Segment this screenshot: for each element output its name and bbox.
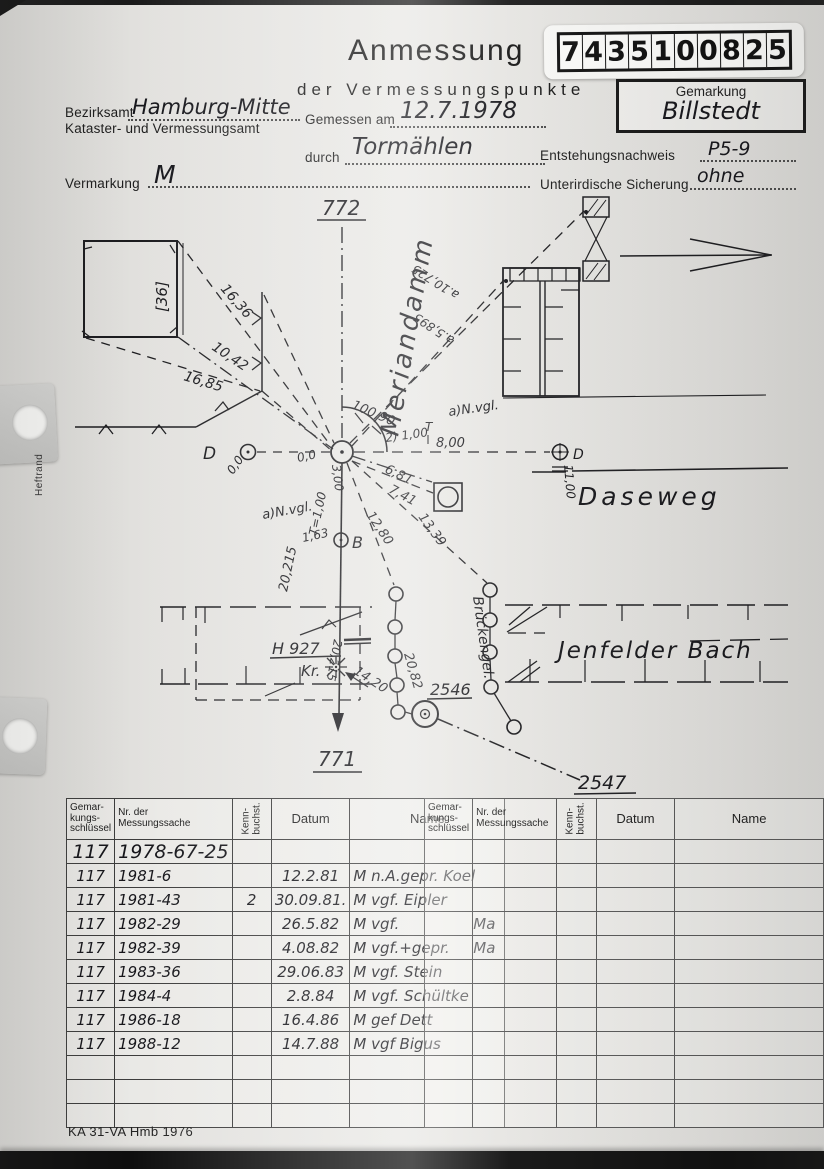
col-header-name: Name	[675, 799, 824, 840]
cell-kennbuchst	[232, 984, 271, 1008]
cell-schluessel: 117	[67, 840, 115, 864]
bezirksamt-value: Hamburg-Mitte	[132, 95, 291, 119]
measurement-log-table-right: Gemar- kungs- schlüssel Nr. der Messungs…	[424, 798, 824, 1128]
label-d-right: D	[573, 447, 584, 463]
col-header-datum: Datum	[271, 799, 350, 840]
heftrand-margin-label: Heftrand	[34, 454, 45, 496]
cell-kennbuchst	[232, 840, 271, 864]
survey-sketch: 772 771 Meriandamm D 0,0 0,0 100,90	[0, 195, 824, 795]
m-20-215-a: 20,215	[276, 545, 300, 593]
m-16-36: 16,36	[217, 281, 255, 322]
cell-datum: 14.7.88	[271, 1032, 350, 1056]
stamp-digit-box: 7 4 3 5 1 0 0 8 2 5	[556, 30, 791, 72]
cell-nr: 1986-18	[115, 1008, 232, 1032]
cell-nr: 1983-36	[115, 960, 232, 984]
field-line	[345, 163, 545, 165]
m-3-00: 3,00	[329, 464, 346, 493]
amt-label: Kataster- und Vermessungsamt	[65, 121, 260, 136]
stamp-digit: 5	[627, 34, 650, 68]
entstehung-label: Entstehungsnachweis	[540, 148, 675, 163]
sicherung-label: Unterirdische Sicherung	[540, 177, 689, 192]
col-header-datum: Datum	[596, 799, 675, 840]
gemessen-value: 12.7.1978	[400, 98, 517, 124]
vermarkung-label: Vermarkung	[65, 176, 140, 191]
durch-label: durch	[305, 150, 340, 165]
cell-nr: 1988-12	[115, 1032, 232, 1056]
stamp-digit: 8	[719, 33, 742, 67]
cell-schluessel: 117	[67, 960, 115, 984]
cell-kennbuchst	[232, 912, 271, 936]
cell-kennbuchst	[232, 936, 271, 960]
m-13-39: 13,39	[415, 511, 449, 550]
nvgl-left: a)N.vgl.	[261, 499, 313, 523]
page-title: Anmessung	[348, 34, 524, 68]
cell-datum: 29.06.83	[271, 960, 350, 984]
table-row-empty	[425, 1080, 824, 1104]
northeast-group: a.10,725 a.5,895	[350, 197, 772, 447]
label-d-left: D	[203, 444, 216, 464]
gemarkung-value: Billstedt	[619, 97, 803, 125]
m-1-63: 1,63	[301, 526, 330, 545]
col-header-kennbuchst: Kenn- buchst.	[232, 799, 271, 840]
scan-edge-top	[0, 0, 824, 5]
cell-schluessel: 117	[67, 864, 115, 888]
durch-value: Tormählen	[352, 134, 473, 160]
table-row-empty	[425, 912, 824, 936]
table-row-empty	[425, 1056, 824, 1080]
hole-punch-reinforcement	[0, 383, 58, 464]
field-line	[690, 188, 796, 190]
scan-edge-bottom	[0, 1151, 824, 1169]
cell-nr: 1981-6	[115, 864, 232, 888]
cell-kennbuchst	[232, 1008, 271, 1032]
cell-nr: 1982-29	[115, 912, 232, 936]
punch-hole	[1, 718, 38, 755]
gemarkung-box: Gemarkung Billstedt	[616, 79, 806, 133]
point-771-label: 771	[318, 747, 356, 771]
m-11-00: 11,00	[561, 464, 578, 500]
col-header-kennbuchst-text: Kenn- buchst.	[241, 803, 262, 835]
cell-nr: 1982-39	[115, 936, 232, 960]
entstehung-value: P5-9	[708, 138, 751, 160]
street-daseweg: Daseweg	[578, 482, 721, 511]
col-header-schluessel: Gemar- kungs- schlüssel	[67, 799, 115, 840]
cell-datum: 26.5.82	[271, 912, 350, 936]
col-header-schluessel: Gemar- kungs- schlüssel	[425, 799, 473, 840]
cell-datum: 4.08.82	[271, 936, 350, 960]
m-16-85: 16,85	[182, 369, 225, 396]
field-line	[148, 186, 530, 188]
form-code: KA 31-VA Hmb 1976	[68, 1124, 193, 1139]
stamp-digit: 0	[673, 34, 696, 68]
stamp-digit: 7	[559, 35, 581, 69]
scanned-survey-form: Anmessung der Vermessungspunkte 7 4 3 5 …	[0, 0, 824, 1169]
point-2547-label: 2547	[578, 772, 626, 794]
cell-datum: 30.09.81.	[271, 888, 350, 912]
left-d-group: D 0,0 0,0	[203, 444, 330, 477]
cell-schluessel: 117	[67, 1008, 115, 1032]
table-row-empty	[425, 888, 824, 912]
b-point-group: B 1,63 20,215	[276, 526, 363, 593]
cell-schluessel: 117	[67, 888, 115, 912]
right-d-group: D 11,00 Daseweg	[532, 443, 788, 511]
col-header-kennbuchst: Kenn- buchst.	[557, 799, 596, 840]
bridge-abbr-label: Brückengel.	[469, 595, 496, 680]
col-header-messungssache: Nr. der Messungssache	[115, 799, 232, 840]
col-header-messungssache: Nr. der Messungssache	[473, 799, 557, 840]
sicherung-value: ohne	[697, 165, 744, 187]
bridge-group: H 927 20,215 Kr. 14,20 20,82	[270, 638, 425, 696]
ray-group-southeast: 6,81 7,41 12,80 13,39	[347, 456, 487, 585]
cell-nr: 1981-43	[115, 888, 232, 912]
bezirksamt-label: Bezirksamt	[65, 105, 134, 120]
table-row-empty	[425, 936, 824, 960]
table-row-empty	[425, 1104, 824, 1128]
cell-datum: 12.2.81	[271, 864, 350, 888]
stamp-digit: 2	[742, 33, 765, 67]
cell-schluessel: 117	[67, 984, 115, 1008]
point-2546-label: 2546	[430, 680, 471, 699]
cell-datum	[271, 840, 350, 864]
stamp-digit: 5	[765, 33, 788, 67]
building-number-label: [36]	[153, 281, 171, 312]
label-b: B	[352, 533, 363, 552]
table-row-empty	[425, 1008, 824, 1032]
cell-nr: 1978-67-25	[115, 840, 232, 864]
cell-name-text: M vgf.	[353, 915, 399, 933]
gemessen-label: Gemessen am	[305, 112, 395, 127]
garage-building	[503, 268, 766, 398]
table-header-row: Gemar- kungs- schlüssel Nr. der Messungs…	[425, 799, 824, 840]
cell-schluessel: 117	[67, 912, 115, 936]
railing-chains: 2546 2547 Brückengel.	[388, 583, 636, 794]
cell-kennbuchst	[232, 960, 271, 984]
label-h927: H 927	[272, 639, 320, 658]
point-772-label: 772	[322, 196, 360, 220]
tower-symbol	[583, 197, 609, 281]
field-line	[700, 160, 796, 162]
table-row-empty	[425, 840, 824, 864]
cell-kennbuchst: 2	[232, 888, 271, 912]
table-row-empty	[425, 960, 824, 984]
m-10-42: 10,42	[209, 339, 251, 375]
m-0-0-center: 0,0	[296, 447, 318, 465]
m-0-0-left: 0,0	[224, 453, 247, 477]
cell-datum: 16.4.86	[271, 1008, 350, 1032]
m-12-80: 12,80	[363, 509, 396, 548]
m-8-00: 8,00	[436, 436, 465, 451]
point-number-stamp: 7 4 3 5 1 0 0 8 2 5	[544, 23, 805, 80]
stamp-digit: 4	[581, 35, 604, 69]
cell-kennbuchst	[232, 1032, 271, 1056]
kr-cross-mark	[325, 656, 347, 678]
punch-hole	[11, 404, 49, 442]
north-arrow-icon	[620, 239, 772, 271]
cell-schluessel: 117	[67, 1032, 115, 1056]
t-mark: T	[425, 420, 434, 434]
building-36-group: [36] 16,36 10,42 16,85	[75, 241, 334, 451]
cell-schluessel: 117	[67, 936, 115, 960]
stamp-digit: 3	[604, 34, 627, 68]
street-meriandamm: Meriandamm	[375, 234, 440, 438]
col-header-kennbuchst-text: Kenn- buchst.	[566, 803, 587, 835]
label-kr: Kr.	[301, 662, 320, 680]
field-line	[390, 126, 546, 128]
nvgl-top: a)N.vgl.	[447, 398, 499, 420]
cell-nr: 1984-4	[115, 984, 232, 1008]
page-subtitle: der Vermessungspunkte	[297, 80, 585, 100]
table-row-empty	[425, 984, 824, 1008]
table-row-empty	[425, 864, 824, 888]
vermarkung-value: M	[154, 160, 176, 189]
hole-punch-reinforcement	[0, 697, 47, 775]
stamp-digit: 0	[696, 34, 719, 68]
cell-datum: 2.8.84	[271, 984, 350, 1008]
stream-name-label: Jenfelder Bach	[554, 638, 753, 664]
stamp-digit: 1	[650, 34, 673, 68]
table-row-empty	[425, 1032, 824, 1056]
cell-kennbuchst	[232, 864, 271, 888]
scan-corner	[0, 0, 26, 16]
